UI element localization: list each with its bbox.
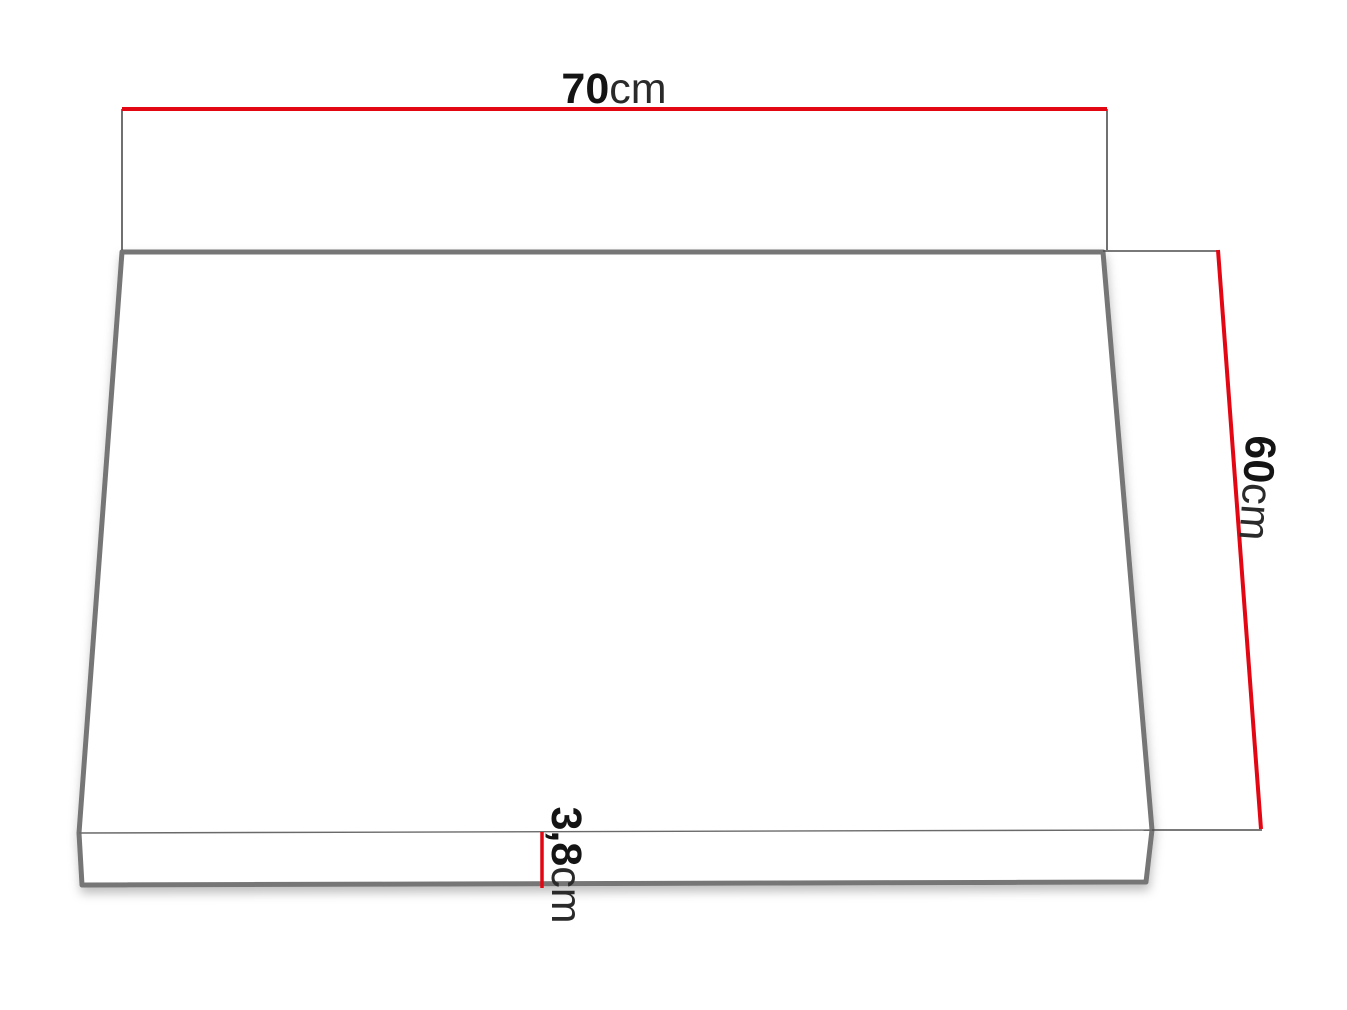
depth-unit: cm: [1229, 482, 1281, 543]
thickness-value: 3,8: [542, 806, 590, 866]
thickness-dimension-label: 3,8cm: [542, 806, 590, 923]
depth-value: 60: [1233, 434, 1284, 485]
panel-outline: [79, 252, 1152, 885]
width-unit: cm: [609, 65, 666, 113]
panel-dimension-diagram: 70cm 60cm 3,8cm: [0, 0, 1347, 1010]
depth-dimension-label: 60cm: [1229, 434, 1284, 542]
diagram-canvas: 70cm 60cm 3,8cm: [0, 0, 1347, 1010]
width-value: 70: [561, 65, 609, 113]
width-dimension-label: 70cm: [561, 65, 666, 113]
thickness-unit: cm: [542, 866, 590, 923]
